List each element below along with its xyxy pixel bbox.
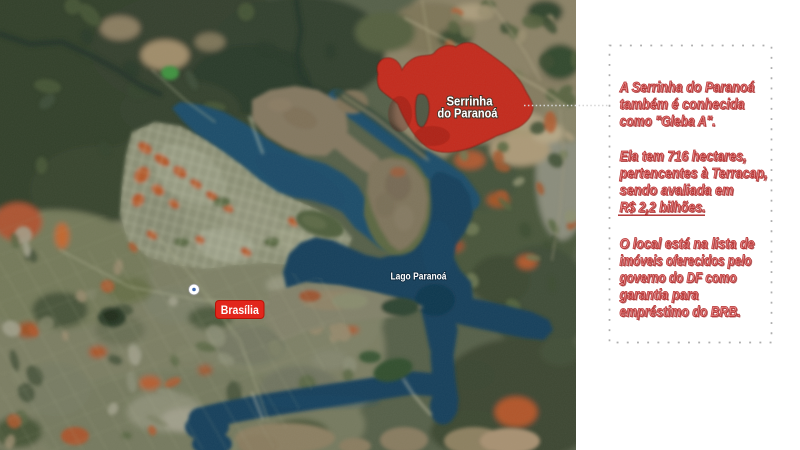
svg-text:do Paranoá: do Paranoá xyxy=(438,106,499,121)
svg-text:garantia para: garantia para xyxy=(619,287,699,304)
svg-text:imóveis oferecidos pelo: imóveis oferecidos pelo xyxy=(620,253,752,270)
svg-text:A Serrinha do Paranoá: A Serrinha do Paranoá xyxy=(619,79,755,96)
svg-text:sendo avaliada em: sendo avaliada em xyxy=(620,182,734,199)
svg-text:como "Gleba A".: como "Gleba A". xyxy=(620,113,716,130)
svg-text:empréstimo do BRB.: empréstimo do BRB. xyxy=(620,304,741,321)
svg-text:O local está na lista de: O local está na lista de xyxy=(620,236,755,253)
svg-text:governo do DF como: governo do DF como xyxy=(619,270,737,287)
svg-text:Ela tem 716 hectares,: Ela tem 716 hectares, xyxy=(620,148,747,165)
svg-text:pertencentes à Terracap,: pertencentes à Terracap, xyxy=(619,165,768,182)
svg-text:Lago Paranoá: Lago Paranoá xyxy=(391,271,447,283)
svg-text:também é conhecida: também é conhecida xyxy=(620,96,745,113)
svg-text:R$ 2,2 bilhões.: R$ 2,2 bilhões. xyxy=(620,199,706,216)
svg-text:Brasília: Brasília xyxy=(221,305,260,317)
